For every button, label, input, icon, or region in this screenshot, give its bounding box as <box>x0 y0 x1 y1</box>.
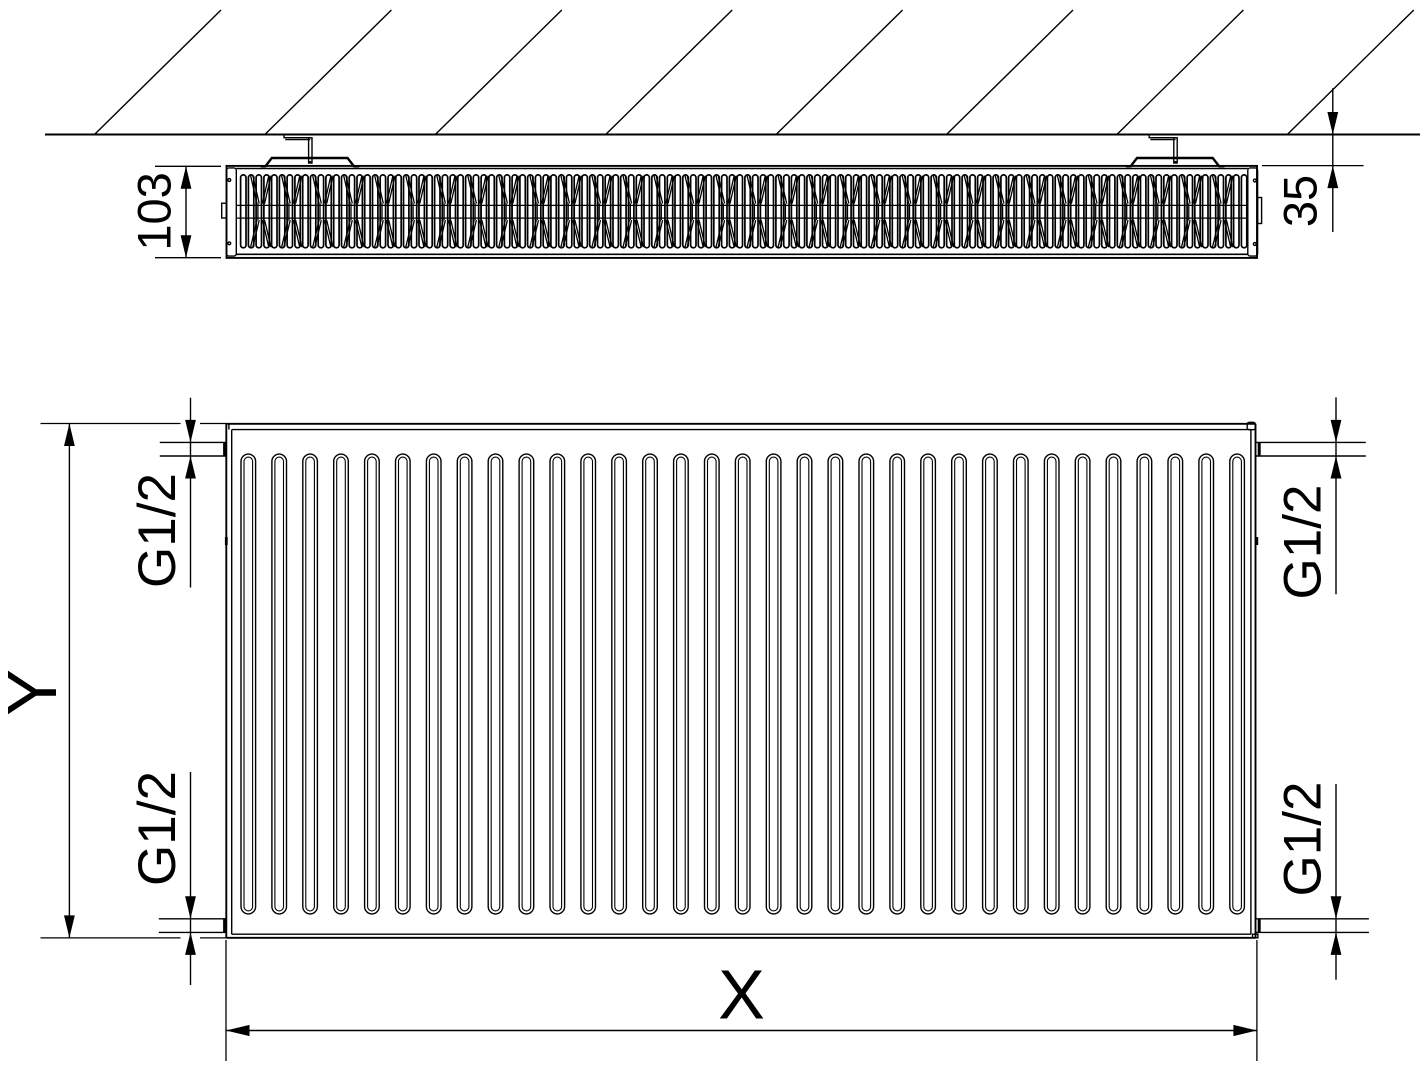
svg-text:Y: Y <box>0 669 71 716</box>
svg-text:G1/2: G1/2 <box>1274 782 1333 897</box>
svg-text:G1/2: G1/2 <box>128 771 187 886</box>
svg-text:35: 35 <box>1273 175 1326 227</box>
svg-text:X: X <box>718 955 765 1033</box>
svg-text:G1/2: G1/2 <box>1274 485 1333 600</box>
svg-text:G1/2: G1/2 <box>128 473 187 588</box>
svg-text:103: 103 <box>127 172 180 250</box>
